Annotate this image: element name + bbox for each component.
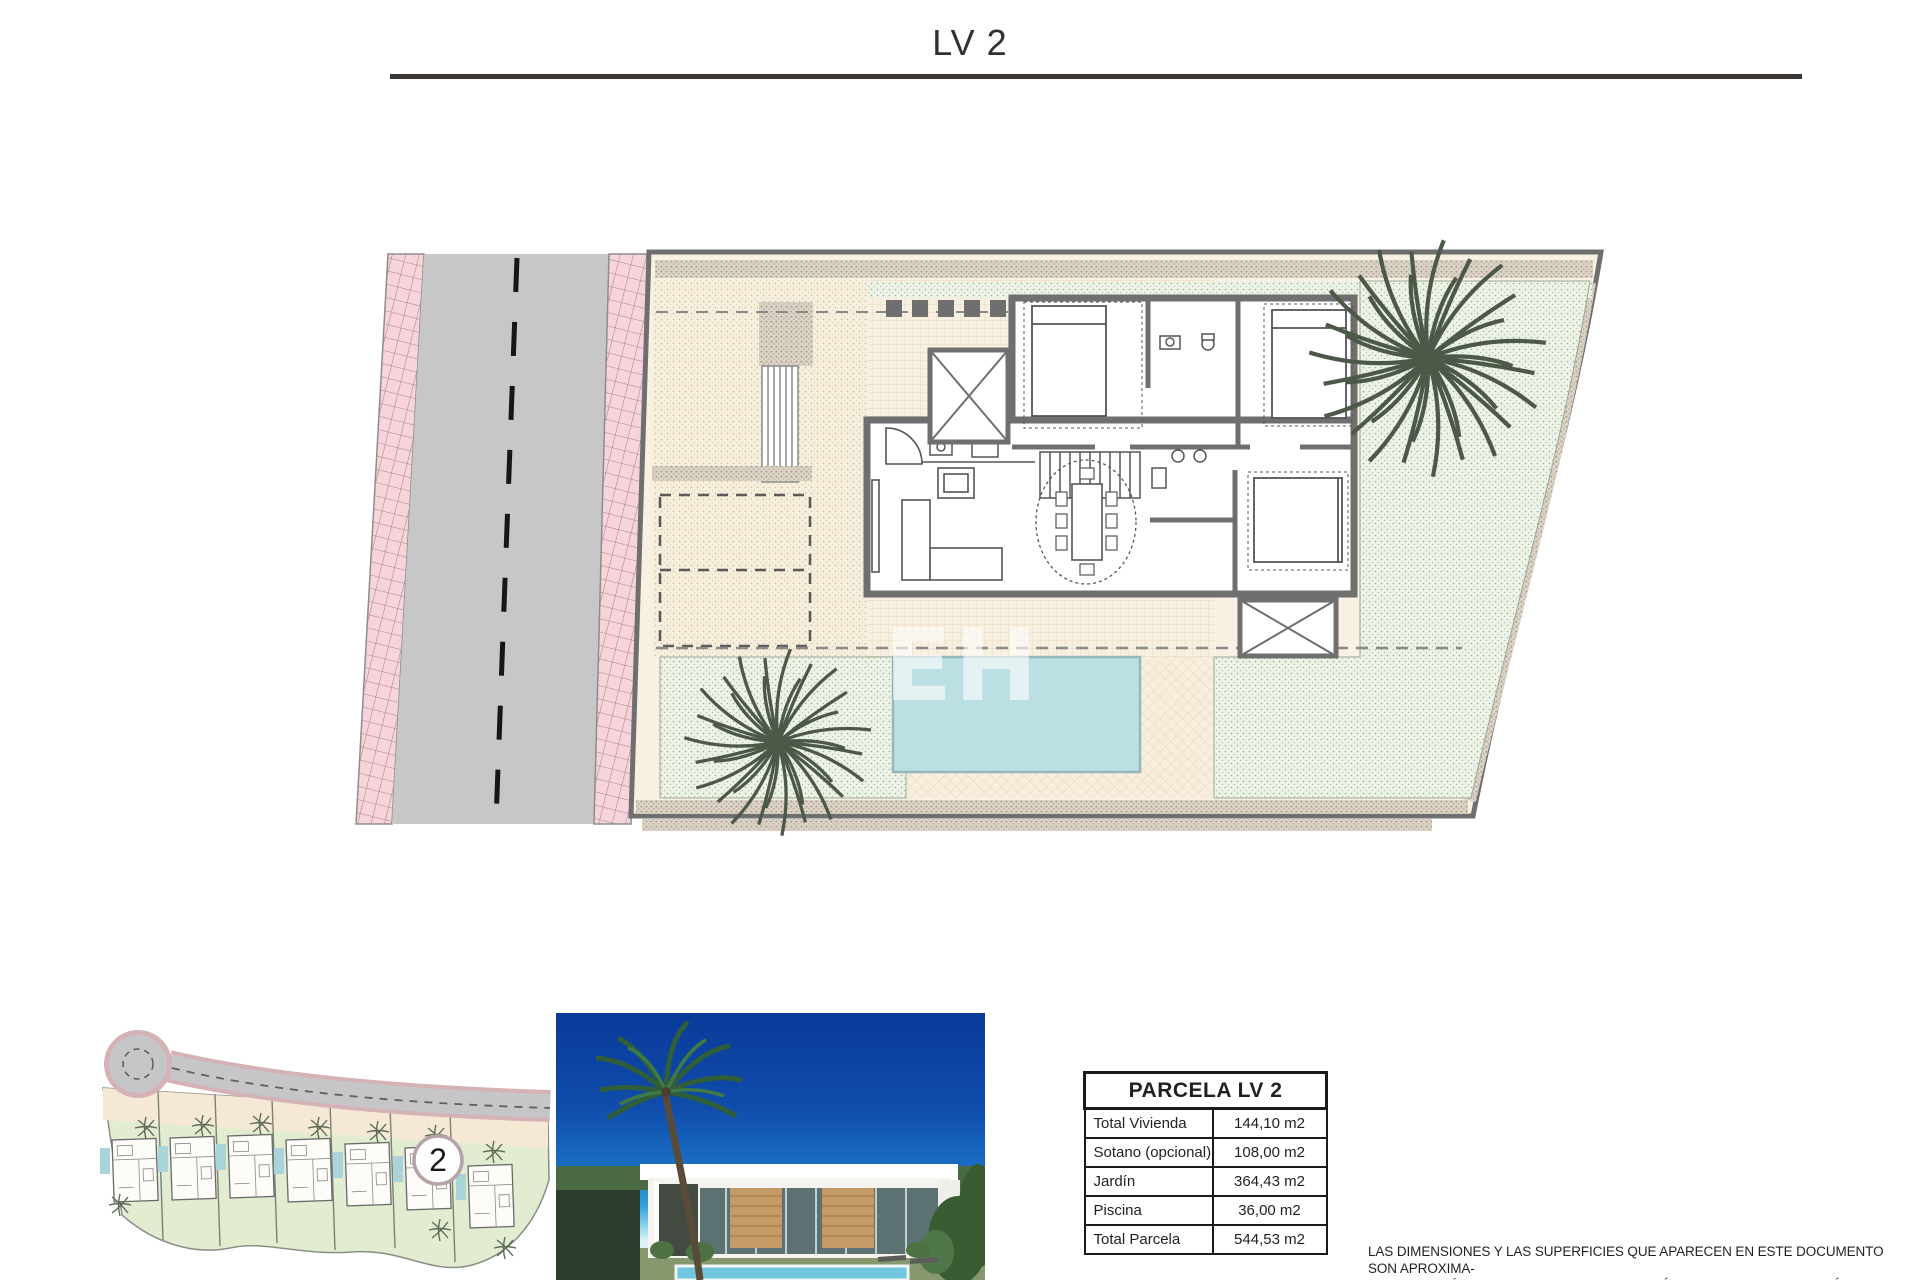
roundabout xyxy=(109,1035,167,1093)
parcel-2-marker: 2 xyxy=(414,1136,462,1184)
plan-sheet: LV 2 xyxy=(0,0,1920,1280)
row-value: 364,43 m2 xyxy=(1213,1167,1327,1196)
row-value: 36,00 m2 xyxy=(1213,1196,1327,1225)
legal-disclaimer: LAS DIMENSIONES Y LAS SUPERFICIES QUE AP… xyxy=(1368,1243,1908,1280)
parcel-surface-table: PARCELA LV 2 Total Vivienda 144,10 m2 So… xyxy=(1083,1071,1328,1255)
row-value: 544,53 m2 xyxy=(1213,1225,1327,1254)
table-row: Total Parcela 544,53 m2 xyxy=(1085,1225,1327,1254)
parcel-2-label: 2 xyxy=(429,1142,447,1178)
table-row: Piscina 36,00 m2 xyxy=(1085,1196,1327,1225)
row-label: Total Vivienda xyxy=(1085,1109,1213,1139)
row-label: Jardín xyxy=(1085,1167,1213,1196)
disclaimer-line: LAS DIMENSIONES Y LAS SUPERFICIES QUE AP… xyxy=(1368,1243,1908,1277)
table-row: Total Vivienda 144,10 m2 xyxy=(1085,1109,1327,1139)
row-label: Total Parcela xyxy=(1085,1225,1213,1254)
row-value: 108,00 m2 xyxy=(1213,1138,1327,1167)
table-row: Jardín 364,43 m2 xyxy=(1085,1167,1327,1196)
photo-pool xyxy=(676,1266,908,1280)
table-row: Sotano (opcional) 108,00 m2 xyxy=(1085,1138,1327,1167)
hedge-left xyxy=(556,1190,640,1280)
row-label: Sotano (opcional) xyxy=(1085,1138,1213,1167)
row-value: 144,10 m2 xyxy=(1213,1109,1327,1139)
villa-render-photo xyxy=(556,1013,985,1280)
roof-slab xyxy=(640,1164,958,1180)
table-title: PARCELA LV 2 xyxy=(1085,1073,1327,1109)
row-label: Piscina xyxy=(1085,1196,1213,1225)
